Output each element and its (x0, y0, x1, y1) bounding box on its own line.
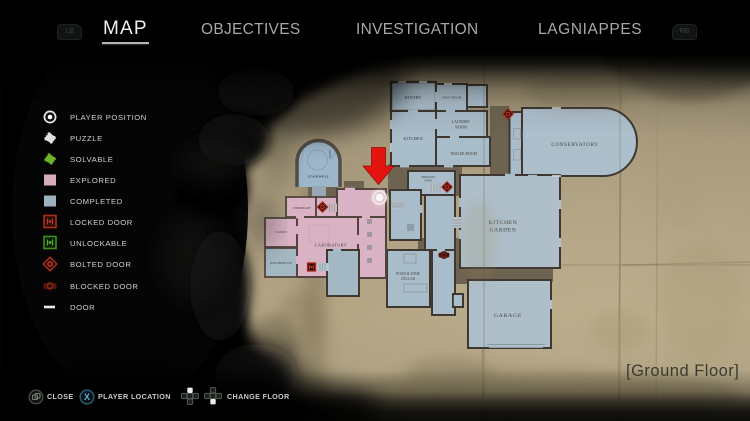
svg-text:KITCHEN: KITCHEN (403, 136, 423, 141)
svg-text:LABORATORY: LABORATORY (315, 243, 348, 248)
svg-text:STAIR: STAIR (424, 180, 432, 183)
svg-text:BOILER ROOM: BOILER ROOM (451, 152, 478, 156)
svg-text:X: X (84, 392, 90, 402)
svg-text:FOOD & WINE: FOOD & WINE (396, 272, 420, 276)
svg-text:KITCHENETTE: KITCHENETTE (270, 261, 292, 265)
svg-text:CELLAR: CELLAR (401, 277, 416, 281)
svg-text:STAIRWELL: STAIRWELL (308, 175, 330, 179)
svg-text:INFIRMARY: INFIRMARY (293, 206, 311, 210)
svg-text:CLOSET: CLOSET (275, 230, 287, 234)
svg-text:GARAGE: GARAGE (494, 313, 522, 319)
svg-text:CONSERVATORY: CONSERVATORY (551, 142, 598, 148)
